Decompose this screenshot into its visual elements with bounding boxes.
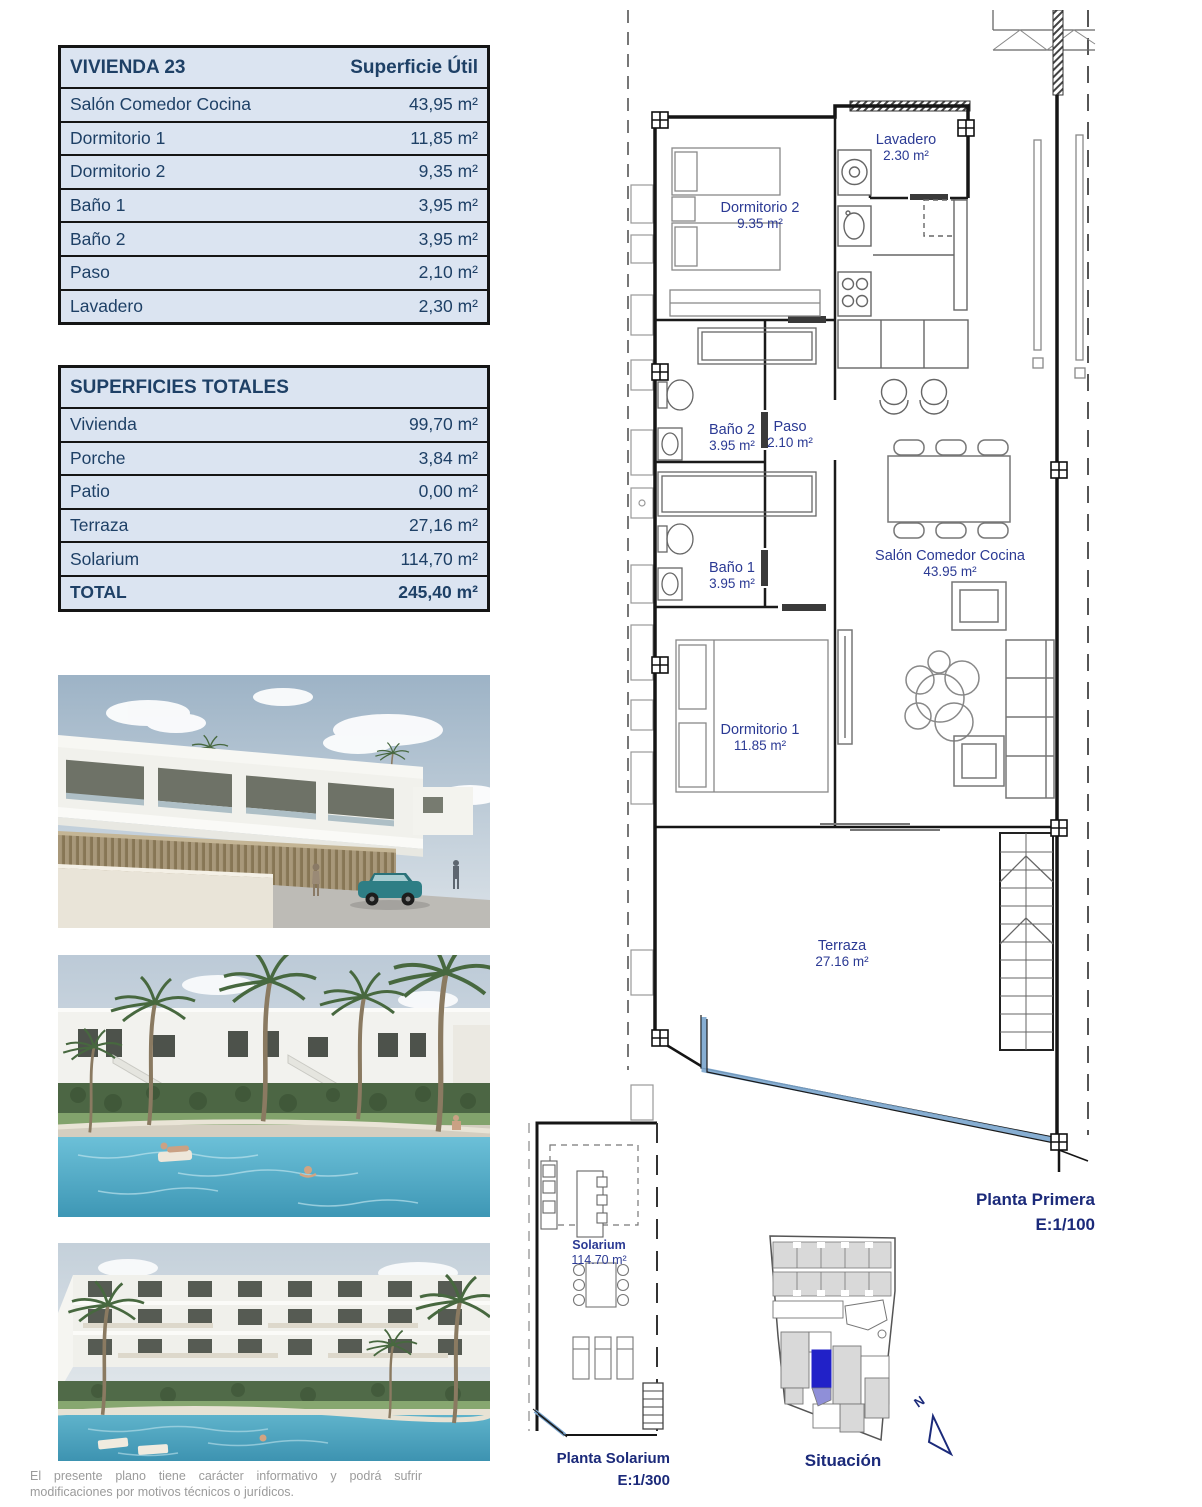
caption-situacion: Situación [805,1451,882,1470]
room-area-salon: 43.95 m² [923,564,977,579]
sofa-icon [1006,640,1054,798]
caption-planta-primera: Planta Primera E:1/100 [955,1188,1095,1237]
render-photo-pool [58,955,490,1217]
plant-icon [905,651,979,741]
total-value: 99,70 m² [409,414,478,435]
caption-planta-solarium: Planta Solarium E:1/300 [520,1448,670,1492]
room-label: Dormitorio 1 [70,128,165,149]
toilet-icon [658,382,667,408]
table-header: VIVIENDA 23 Superficie Útil [61,48,487,87]
room-area: 43,95 m² [409,94,478,115]
north-arrow-icon: N [911,1393,951,1454]
total-label: Patio [70,481,110,502]
total-label: Vivienda [70,414,137,435]
chair-icon [894,523,924,538]
room-label: Salón Comedor Cocina [70,94,251,115]
room-label-bano2: Baño 2 [709,422,755,438]
stool-icon [882,380,907,405]
render-photo-street [58,675,490,928]
room-area: 3,95 m² [419,229,478,250]
table-title: SUPERFICIES TOTALES [70,377,289,399]
room-area-dormitorio1: 11.85 m² [734,738,787,753]
salon-furniture [838,440,1054,798]
total-value: 0,00 m² [419,481,478,502]
room-label: Lavadero [70,296,143,317]
staircase [1000,833,1053,1050]
dormitorio2-furniture [670,148,820,316]
hob-icon [838,272,871,316]
room-label-dormitorio2: Dormitorio 2 [721,200,800,216]
room-labels: Dormitorio 2 9.35 m² Lavadero 2.30 m² Ba… [709,132,1026,969]
room-label: Dormitorio 2 [70,161,165,182]
room-area-solarium: 114.70 m² [571,1253,626,1267]
shower-tray [698,328,816,364]
table-row: Dormitorio 2 9,35 m² [61,154,487,188]
hedge [58,1381,490,1403]
table-row: Terraza 27,16 m² [61,508,487,542]
total-value: 114,70 m² [401,549,479,570]
render-photo-street-art [58,675,490,928]
table-row: Salón Comedor Cocina 43,95 m² [61,87,487,121]
table-row: Solarium 114,70 m² [61,541,487,575]
sun-loungers [573,1337,633,1379]
room-area-terraza: 27.16 m² [815,954,869,969]
table-row: Lavadero 2,30 m² [61,289,487,323]
kitchen-island [838,320,968,368]
room-label: Paso [70,262,110,283]
room-label: Baño 2 [70,229,125,250]
total-value: 3,84 m² [419,448,478,469]
room-area-paso: 2.10 m² [767,435,813,450]
room-label-paso: Paso [773,419,806,435]
room-area: 2,30 m² [419,296,478,317]
apartment-buildings [58,1008,490,1095]
table-header: SUPERFICIES TOTALES [61,368,487,407]
nightstand [672,197,695,221]
table-row: Baño 1 3,95 m² [61,188,487,222]
room-label-solarium: Solarium [572,1238,626,1252]
caption-scale: E:1/300 [520,1470,670,1492]
floor-plan-solarium: Solarium 114.70 m² [525,1113,675,1450]
room-area-bano1: 3.95 m² [709,576,755,591]
table-superficies-totales: SUPERFICIES TOTALES Vivienda 99,70 m² Po… [58,365,490,612]
room-area: 11,85 m² [410,128,478,149]
table-row: Baño 2 3,95 m² [61,221,487,255]
grand-total-value: 245,40 m² [398,582,478,603]
caption-title: Planta Primera [955,1188,1095,1213]
room-label-bano1: Baño 1 [709,560,755,576]
table-title: VIVIENDA 23 [70,57,185,79]
double-bed-icon [676,640,828,792]
room-label-terraza: Terraza [818,938,867,954]
chair-icon [978,440,1008,455]
table-icon [586,1263,616,1307]
toilet-icon [658,526,667,552]
stool-icon [922,380,947,405]
floor-plan-planta-primera: Dormitorio 2 9.35 m² Lavadero 2.30 m² Ba… [610,10,1110,1195]
room-area-dormitorio2: 9.35 m² [737,216,783,231]
plan-sheet-page: VIVIENDA 23 Superficie Útil Salón Comedo… [0,0,1202,1507]
fridge-icon [924,200,956,236]
tall-cabinet [954,200,967,310]
room-area: 3,95 m² [419,195,478,216]
disclaimer-text: El presente plano tiene carácter informa… [30,1468,422,1501]
table-header-right: Superficie Útil [350,57,478,79]
room-area-bano2: 3.95 m² [709,438,755,453]
dormitorio1-furniture [676,640,828,792]
site-plan-situacion: Situación N [748,1228,960,1483]
chair-icon [936,523,966,538]
table-row: Paso 2,10 m² [61,255,487,289]
dining-table-icon [888,456,1010,522]
front-wall [58,868,273,928]
pool [58,1137,490,1217]
table-row: Dormitorio 1 11,85 m² [61,121,487,155]
party-wall-hatch [1053,10,1063,95]
sink-icon [838,206,871,246]
table-row: Patio 0,00 m² [61,474,487,508]
highlighted-unit [812,1350,831,1388]
total-label: Terraza [70,515,128,536]
shower-tray [658,472,816,516]
table-row: Vivienda 99,70 m² [61,407,487,441]
room-label: Baño 1 [70,195,125,216]
room-label-salon: Salón Comedor Cocina [875,548,1026,564]
washer-icon [838,150,871,195]
room-area: 2,10 m² [419,262,478,283]
caption-scale: E:1/100 [955,1213,1095,1238]
total-value: 27,16 m² [409,515,478,536]
room-label-dormitorio1: Dormitorio 1 [721,722,800,738]
room-area-lavadero: 2.30 m² [883,148,929,163]
north-label: N [911,1393,927,1411]
chair-icon [894,440,924,455]
caption-title: Planta Solarium [520,1448,670,1470]
table-row: Porche 3,84 m² [61,441,487,475]
total-label: Porche [70,448,125,469]
grand-total-label: TOTAL [70,582,127,603]
render-photo-pool-art [58,955,490,1217]
upper-structure [993,10,1095,378]
table-total-row: TOTAL 245,40 m² [61,575,487,609]
solarium-dining [574,1263,629,1307]
bed-icon [672,148,780,195]
render-photo-apartments-art [58,1243,490,1461]
chair-icon [936,440,966,455]
kitchen [838,150,968,414]
chair-icon [978,523,1008,538]
table-superficie-util: VIVIENDA 23 Superficie Útil Salón Comedo… [58,45,490,325]
total-label: Solarium [70,549,139,570]
solarium-stairs [643,1383,663,1429]
neighbour-unit-fragments [631,185,653,1120]
room-label-lavadero: Lavadero [876,132,936,148]
room-area: 9,35 m² [419,161,478,182]
render-photo-apartments [58,1243,490,1461]
